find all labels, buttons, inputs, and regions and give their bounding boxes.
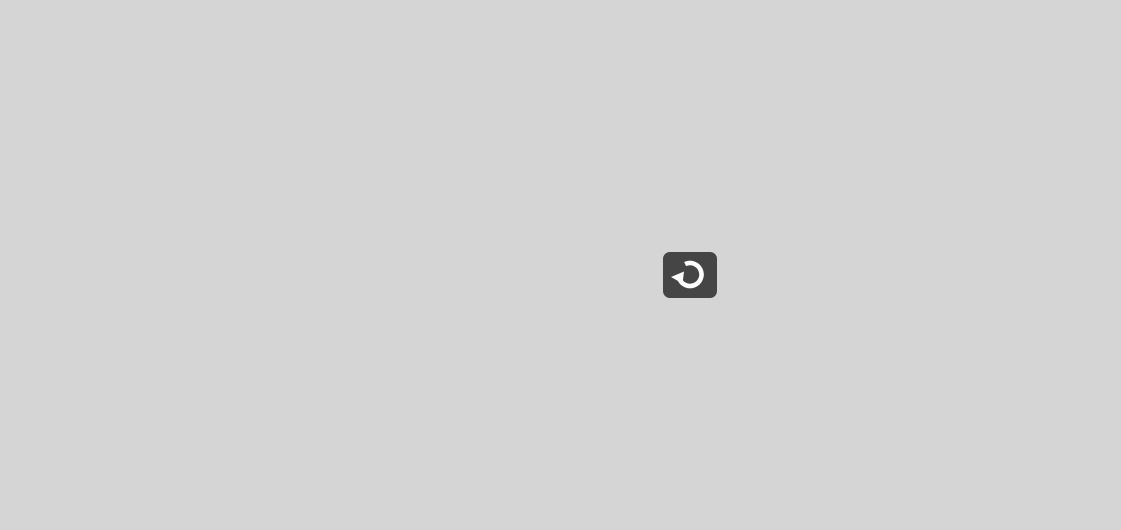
restart-button[interactable] bbox=[663, 252, 717, 298]
restart-circular-arrow-icon bbox=[663, 252, 717, 298]
dino-character bbox=[48, 349, 113, 425]
game-scene bbox=[0, 0, 1121, 530]
